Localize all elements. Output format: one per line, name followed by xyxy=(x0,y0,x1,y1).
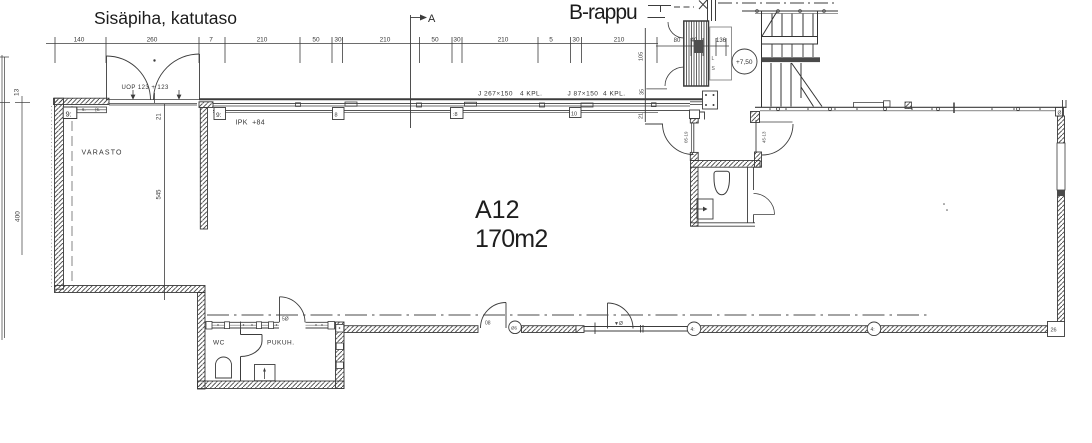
svg-text:L: L xyxy=(712,56,715,62)
svg-text:13: 13 xyxy=(14,88,21,96)
svg-text:IPK +84: IPK +84 xyxy=(236,120,265,127)
svg-text:136: 136 xyxy=(716,38,727,44)
svg-text:50: 50 xyxy=(312,37,320,44)
svg-text:8: 8 xyxy=(335,113,338,119)
svg-text:Sisäpiha, katutaso: Sisäpiha, katutaso xyxy=(94,8,237,28)
svg-text:B-rappu: B-rappu xyxy=(569,1,637,24)
svg-text:26: 26 xyxy=(1051,328,1057,334)
svg-text:7: 7 xyxy=(209,37,213,44)
svg-text:WC: WC xyxy=(213,340,225,347)
svg-text::8: :8 xyxy=(453,112,458,118)
svg-text:10: 10 xyxy=(571,112,577,118)
svg-text:A: A xyxy=(428,13,436,25)
svg-text:4:: 4: xyxy=(691,327,695,333)
svg-text:08: 08 xyxy=(485,321,491,327)
svg-text:170m2: 170m2 xyxy=(475,225,547,253)
svg-text:UOP 123 + 123: UOP 123 + 123 xyxy=(122,85,169,91)
svg-text:6.: 6. xyxy=(82,107,86,112)
svg-text:35: 35 xyxy=(640,89,646,95)
svg-text:400: 400 xyxy=(15,211,22,222)
svg-text:21: 21 xyxy=(639,113,645,119)
svg-text:210: 210 xyxy=(498,37,509,44)
svg-text:5: 5 xyxy=(549,37,553,44)
svg-text:260: 260 xyxy=(147,37,158,44)
svg-text:45-13: 45-13 xyxy=(762,131,767,143)
svg-text:545: 545 xyxy=(157,189,163,200)
svg-text:50: 50 xyxy=(431,37,439,44)
svg-text:105: 105 xyxy=(639,52,645,61)
svg-text:9:: 9: xyxy=(66,110,72,119)
svg-text:VARASTO: VARASTO xyxy=(82,150,123,157)
svg-text:▼Ø: ▼Ø xyxy=(614,321,623,327)
svg-text:80: 80 xyxy=(674,38,681,44)
svg-text:30: 30 xyxy=(572,37,580,44)
svg-text:30: 30 xyxy=(334,37,342,44)
svg-text:210: 210 xyxy=(380,37,391,44)
svg-text:A12: A12 xyxy=(475,196,519,224)
svg-text:210: 210 xyxy=(614,37,625,44)
svg-text:05-19: 05-19 xyxy=(684,131,689,143)
svg-text:140: 140 xyxy=(74,37,85,44)
svg-text:J 267×150 4 KPL.: J 267×150 4 KPL. xyxy=(478,91,542,98)
svg-text:+7,50: +7,50 xyxy=(736,59,753,66)
svg-text:(6.: (6. xyxy=(95,107,100,112)
svg-text:9:: 9: xyxy=(216,112,222,119)
svg-text:30: 30 xyxy=(453,37,461,44)
svg-text:J 87×150 4 KPL.: J 87×150 4 KPL. xyxy=(568,91,626,98)
svg-text:4:: 4: xyxy=(871,327,875,333)
svg-text:21: 21 xyxy=(157,113,163,120)
svg-text:5Ø: 5Ø xyxy=(282,317,289,323)
svg-text:PUKUH.: PUKUH. xyxy=(267,340,295,347)
svg-text:Ø6: Ø6 xyxy=(511,326,518,331)
svg-text:210: 210 xyxy=(257,37,268,44)
